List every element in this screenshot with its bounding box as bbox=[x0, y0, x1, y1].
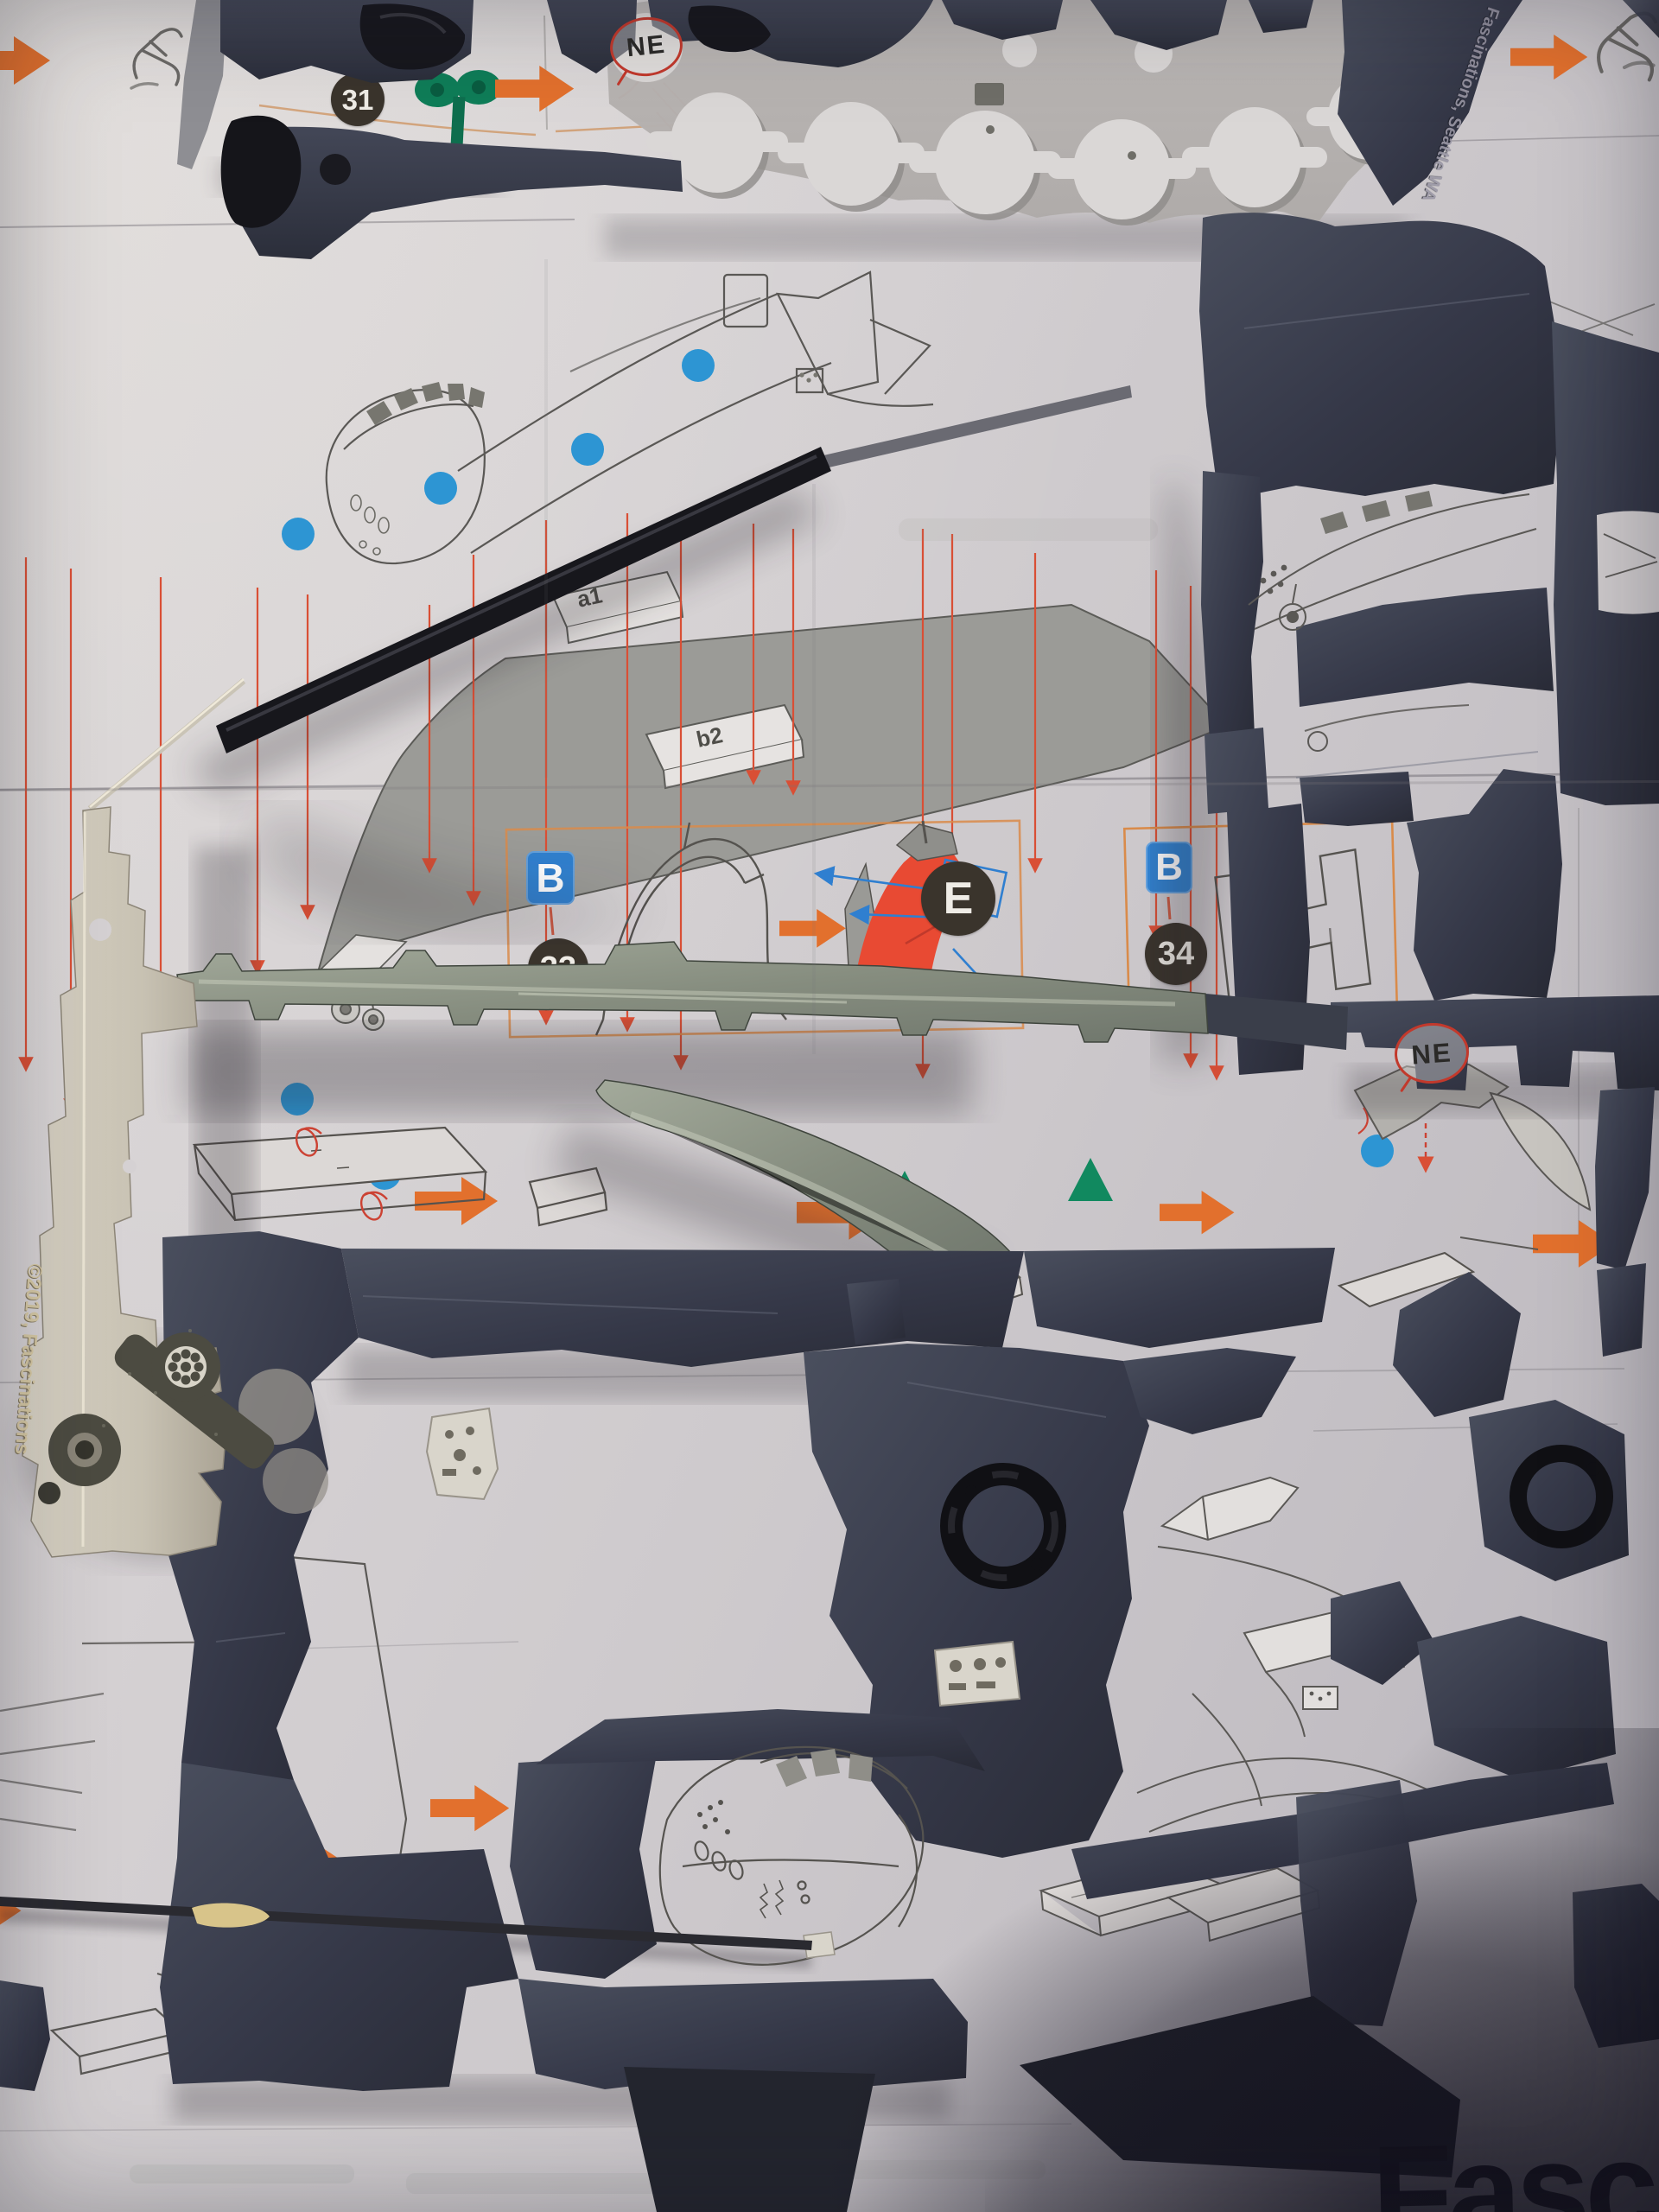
ne-top-label: NE bbox=[626, 32, 668, 62]
sprue-engraved-band-top-right bbox=[1338, 0, 1659, 206]
metal-parts-layer bbox=[0, 0, 1659, 2212]
photo-model-kit-instructions: 31 B 33 E B 34 a1 b2 bbox=[0, 0, 1659, 2212]
silver-fret-left bbox=[22, 679, 328, 1557]
sprue-frame-bottom bbox=[0, 1231, 1659, 2212]
fascinations-logo-partial: Fasci bbox=[1370, 2110, 1659, 2212]
ne-middle-label: NE bbox=[1410, 1039, 1452, 1068]
